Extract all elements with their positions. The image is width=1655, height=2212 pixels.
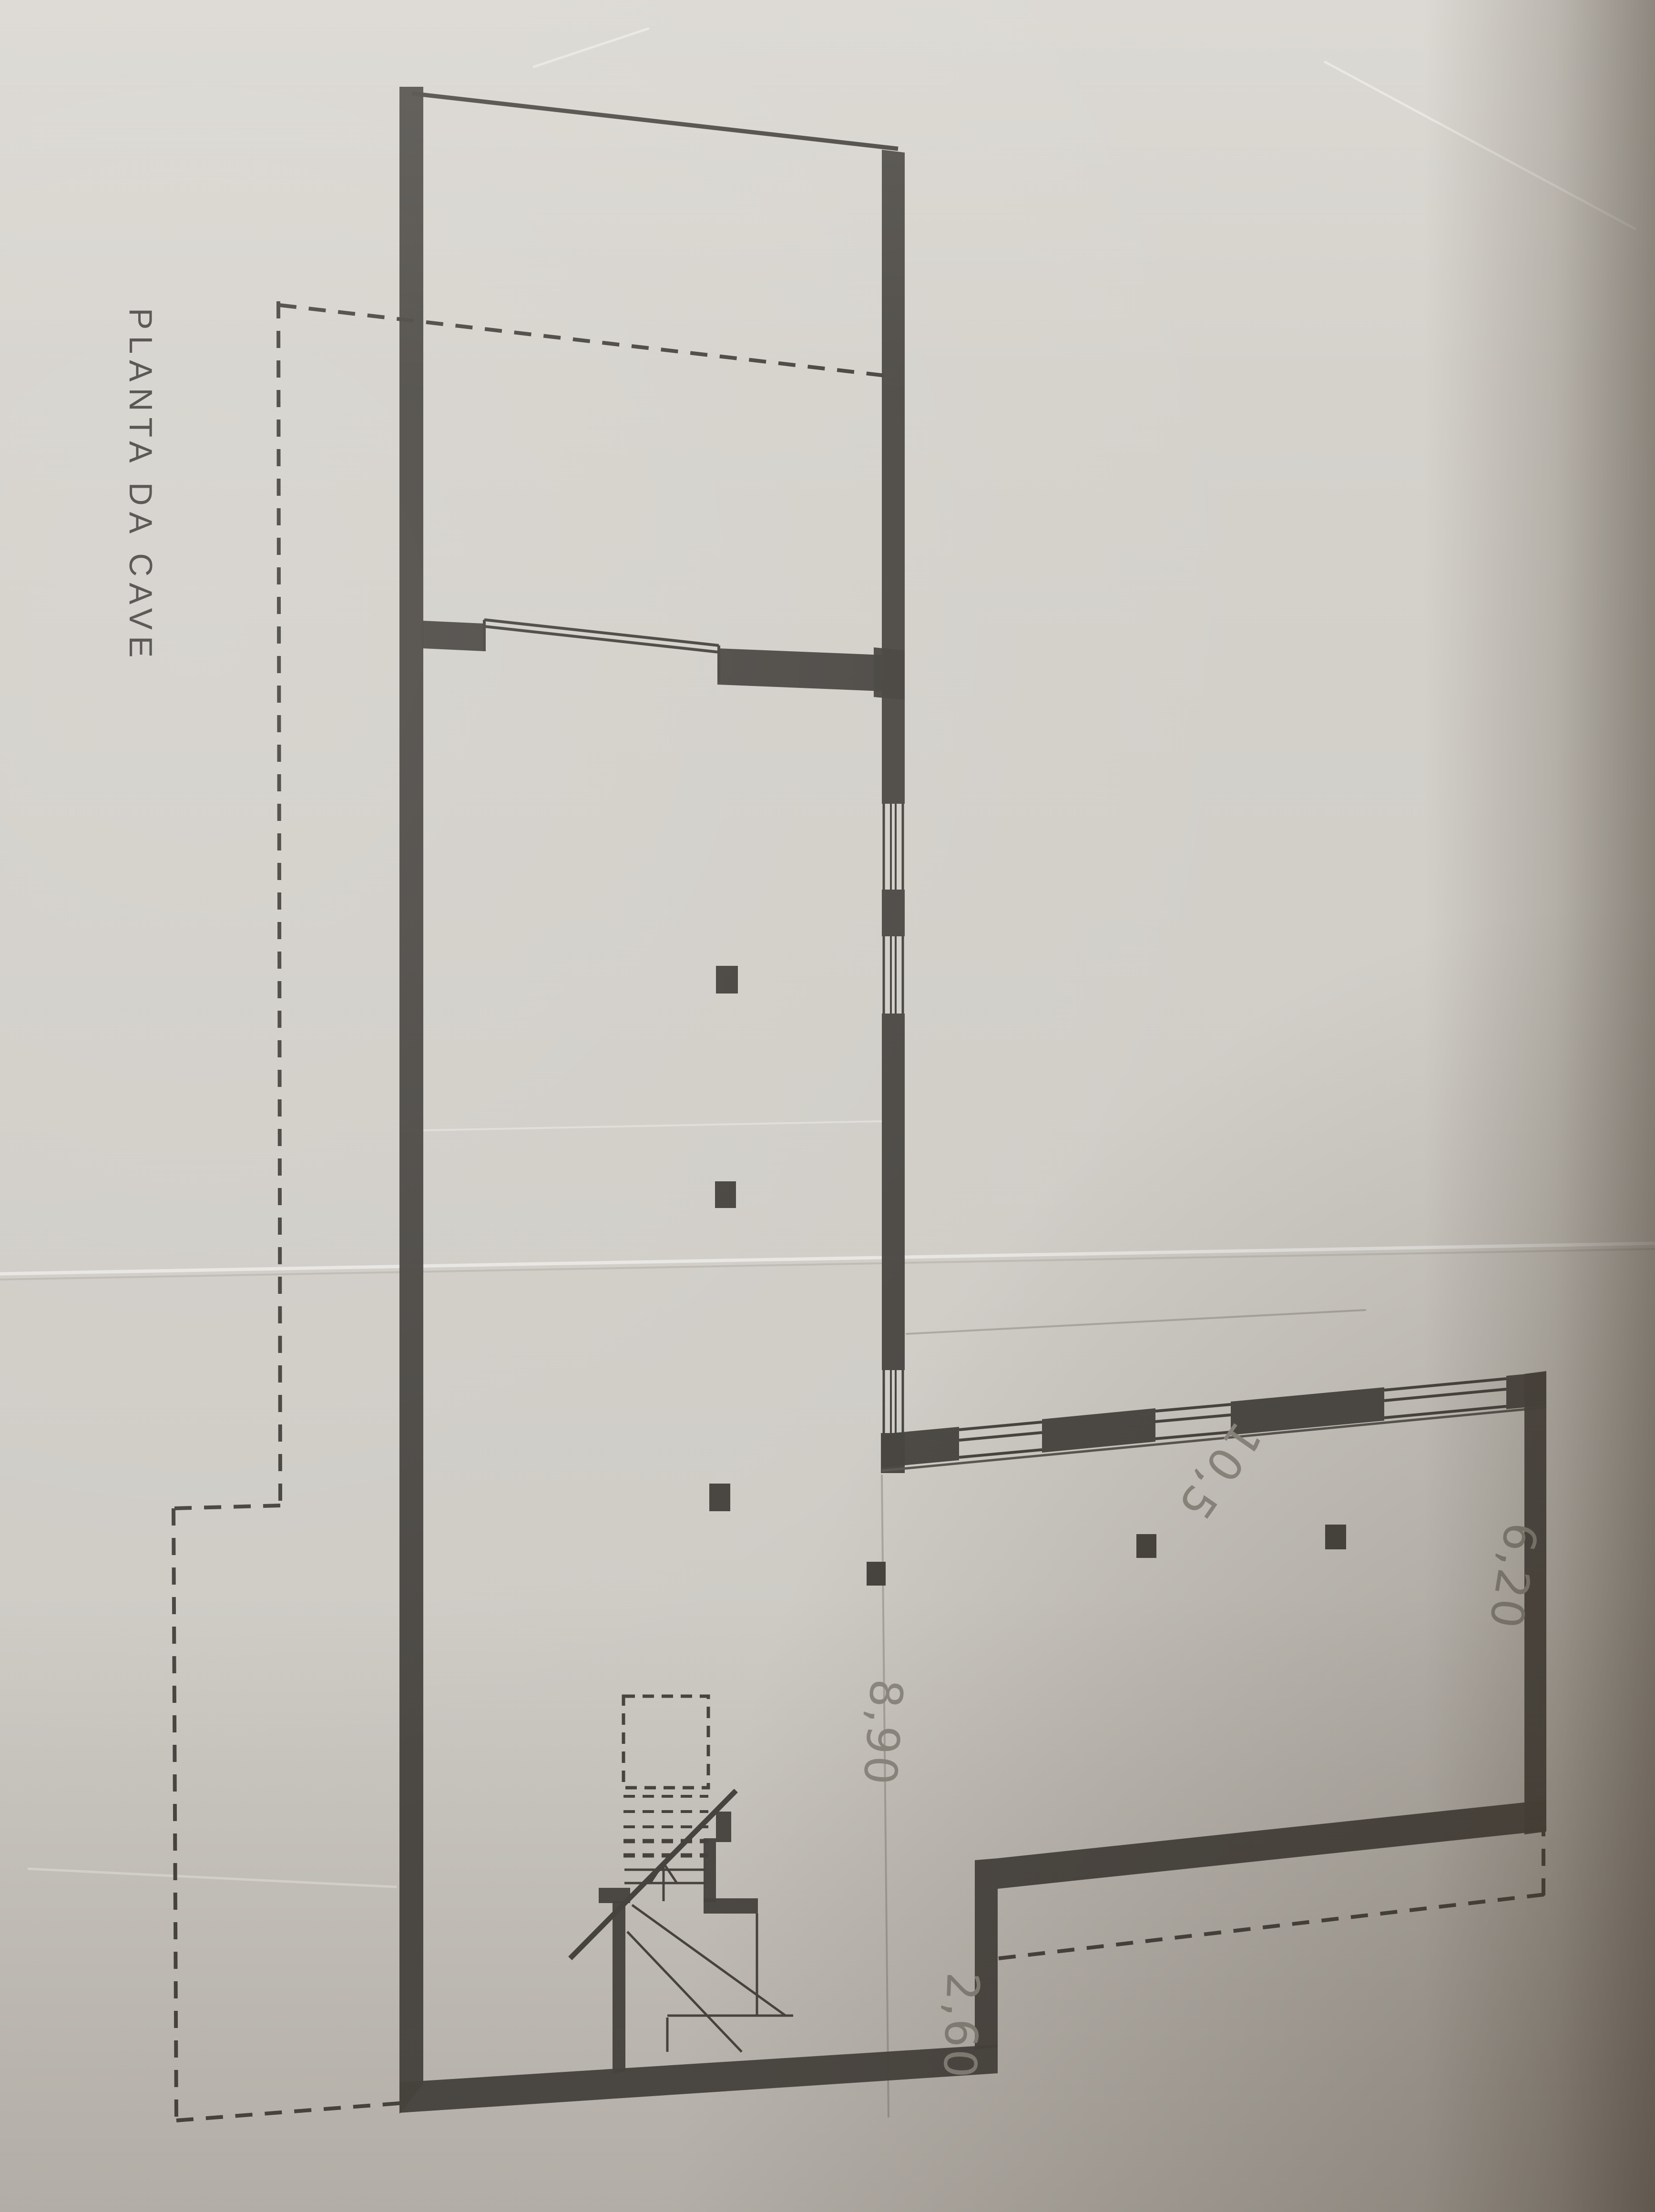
top-boundary-thin-wall — [412, 93, 898, 149]
stair-newel-block — [716, 1812, 731, 1842]
stair-direction-arrow-barb — [664, 1863, 677, 1883]
window-line — [959, 1422, 1042, 1430]
dimension-setback-depth: 2,60 — [933, 1971, 989, 2080]
dashed-boundary-below-wing — [999, 1895, 1544, 1958]
stairwell-wall-right — [704, 1838, 716, 1902]
horizontal-fold-crease — [0, 1243, 1655, 1274]
pillar — [1325, 1525, 1346, 1549]
stair-upper-flight-dashed-outline — [623, 1696, 708, 1788]
mid-room-crease — [400, 1121, 882, 1131]
pillar — [709, 1484, 730, 1511]
dashed-projection-line-top-room — [279, 305, 886, 376]
window-line — [1384, 1379, 1506, 1390]
pillar — [1136, 1534, 1156, 1558]
stairwell-wall-lower — [704, 1898, 758, 1914]
pillar — [716, 966, 738, 993]
paper-creases — [0, 29, 1655, 2117]
window-line — [959, 1433, 1042, 1440]
opening-line-outer — [484, 620, 719, 645]
wing-top-wall-segment-1 — [882, 1427, 959, 1467]
window-line — [1384, 1389, 1506, 1401]
diagonal-crease-top-left — [534, 29, 648, 67]
page-title: PLANTA DA CAVE — [123, 308, 159, 664]
exterior-wall-left — [399, 87, 423, 2114]
window-line — [1155, 1415, 1231, 1422]
exterior-wall-right-pier-1 — [882, 890, 905, 936]
staircase — [570, 1696, 793, 2074]
floor-plan-drawing: PLANTA DA CAVE 10,5 8,90 2,60 6,20 — [0, 0, 1655, 2212]
pillar — [867, 1562, 886, 1586]
walls — [399, 87, 1546, 2114]
dashed-boundary-jog — [174, 1505, 280, 1508]
labels: PLANTA DA CAVE 10,5 8,90 2,60 6,20 — [123, 308, 1547, 2080]
pillar — [715, 1181, 736, 1208]
interior-wall-junction-block — [874, 647, 905, 700]
exterior-wall-bottom — [399, 2045, 998, 2113]
dashed-boundary-left-upper — [278, 301, 280, 1505]
wing-top-wall-segment-3 — [1231, 1387, 1384, 1435]
wing-wall-bottom — [998, 1800, 1546, 1889]
faint-pencil-guideline — [907, 1310, 1365, 1334]
dimension-stair-depth: 8,90 — [853, 1677, 912, 1788]
exterior-wall-right-mid — [882, 1014, 905, 1370]
exterior-wall-right-upper — [882, 150, 905, 804]
pillars — [709, 966, 1346, 1586]
window-symbols — [884, 804, 1506, 1457]
scanned-floor-plan-photo: PLANTA DA CAVE 10,5 8,90 2,60 6,20 — [0, 0, 1655, 2212]
diagonal-crease-top-right — [1325, 62, 1635, 229]
window-line — [1155, 1404, 1231, 1411]
stairwell-wall-left — [613, 1901, 625, 2074]
opening-line-inner — [484, 626, 719, 652]
stair-winder-tread — [627, 1932, 742, 2052]
lower-left-crease — [29, 1869, 396, 1887]
interior-wall-left-segment — [422, 621, 484, 651]
dashed-boundary-bottom — [176, 2102, 411, 2120]
dashed-boundary-left-lower — [174, 1508, 176, 2120]
interior-wall-right-segment — [717, 648, 883, 691]
horizontal-fold-crease-shadow — [0, 1249, 1655, 1280]
